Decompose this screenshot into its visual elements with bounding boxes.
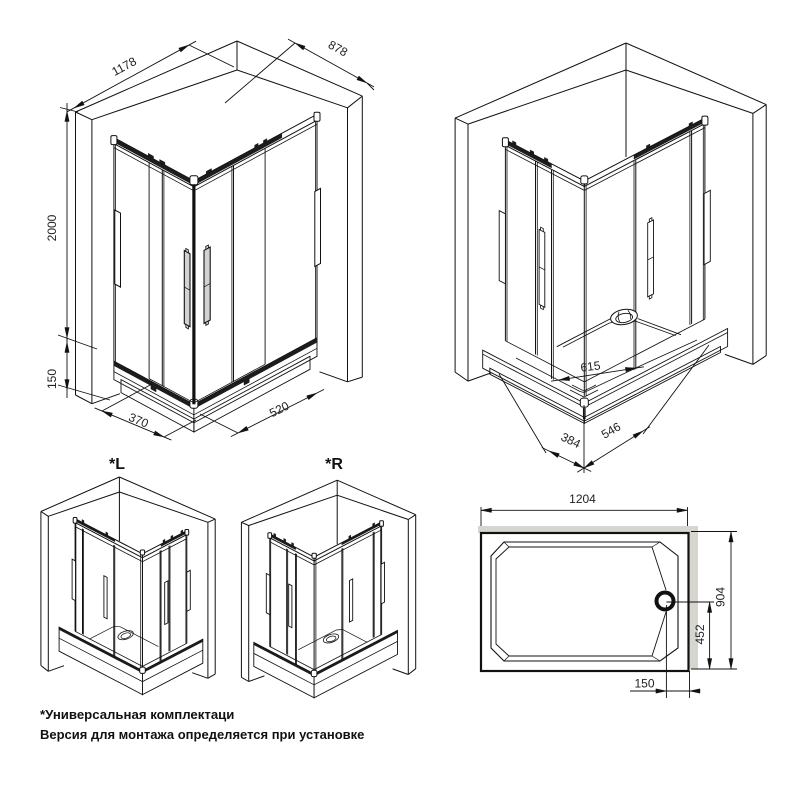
svg-text:*L: *L [109, 456, 125, 473]
svg-text:2000: 2000 [45, 214, 59, 241]
svg-text:*Универсальная комплектаци: *Универсальная комплектаци [40, 707, 234, 722]
svg-text:904: 904 [714, 587, 728, 607]
svg-text:1204: 1204 [569, 492, 596, 506]
svg-text:*R: *R [325, 456, 343, 473]
svg-text:150: 150 [45, 369, 59, 389]
svg-text:452: 452 [693, 624, 707, 644]
svg-text:150: 150 [634, 677, 654, 691]
svg-text:615: 615 [580, 358, 602, 374]
svg-text:Версия для монтажа определяетс: Версия для монтажа определяется при уста… [40, 727, 364, 742]
